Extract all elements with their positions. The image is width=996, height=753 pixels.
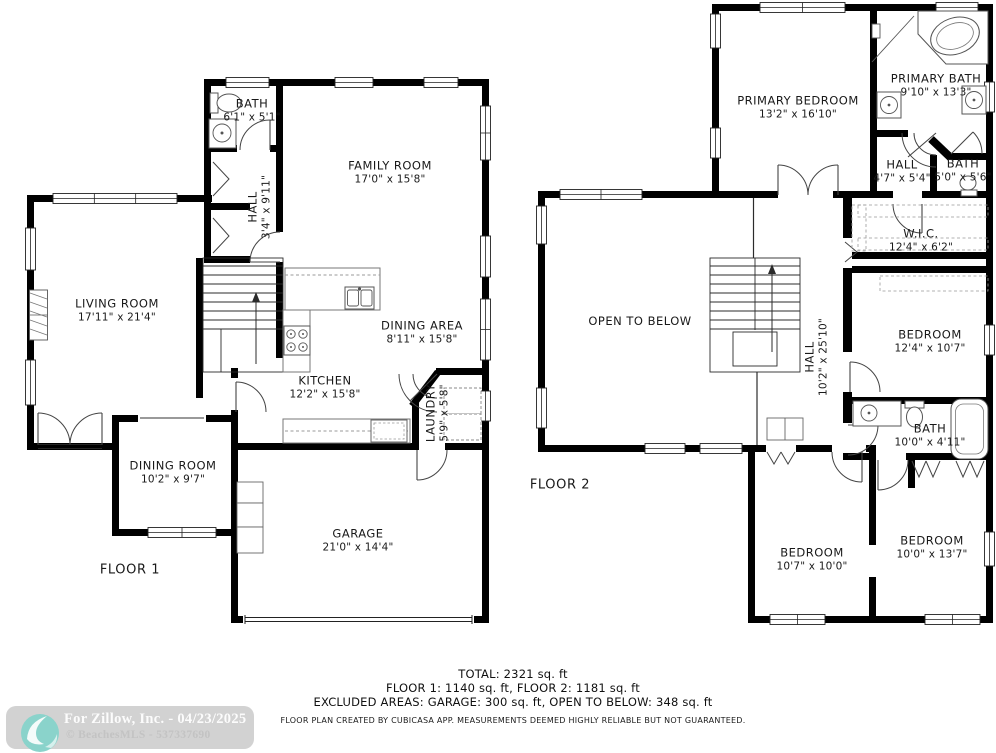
area-summary: TOTAL: 2321 sq. ft FLOOR 1: 1140 sq. ft,… (280, 667, 745, 725)
room-label-hall-upper-f2: HALL 4'7" x 5'4" (873, 158, 930, 185)
room-label-hall-f2: HALL 10'2" x 25'10" (803, 318, 830, 396)
room-label-wic: W.I.C. 12'4" x 6'2" (889, 227, 953, 254)
room-label-dining-area: DINING AREA 8'11" x 15'8" (381, 319, 463, 346)
stairs-floor2-icon (710, 198, 800, 445)
room-label-family-room: FAMILY ROOM 17'0" x 15'8" (348, 159, 432, 186)
wave-logo-icon (16, 708, 62, 753)
floor1-label: FLOOR 1 (100, 563, 160, 578)
room-label-kitchen: KITCHEN 12'2" x 15'8" (289, 374, 360, 401)
excluded-areas: EXCLUDED AREAS: GARAGE: 300 sq. ft, OPEN… (280, 695, 745, 709)
room-label-bath-upper-f2: BATH 5'0" x 5'6" (934, 157, 991, 184)
room-label-primary-bedroom: PRIMARY BEDROOM 13'2" x 16'10" (737, 94, 859, 121)
room-label-bedroom-bl: BEDROOM 10'7" x 10'0" (776, 546, 847, 573)
watermark: For Zillow, Inc. - 04/23/2025 © BeachesM… (6, 706, 254, 749)
watermark-line2: © BeachesMLS - 537337690 (66, 729, 211, 741)
room-label-bath-lower-f2: BATH 10'0" x 4'11" (894, 422, 965, 449)
disclaimer: FLOOR PLAN CREATED BY CUBICASA APP. MEAS… (280, 716, 745, 725)
total-area: TOTAL: 2321 sq. ft (280, 667, 745, 681)
floor-areas: FLOOR 1: 1140 sq. ft, FLOOR 2: 1181 sq. … (280, 681, 745, 695)
room-label-living-room: LIVING ROOM 17'11" x 21'4" (75, 297, 159, 324)
kitchen-sink-icon (345, 287, 374, 309)
room-label-open-to-below: OPEN TO BELOW (588, 314, 691, 328)
room-label-laundry: LAUNDRY 5'9" x 5'8" (424, 384, 451, 442)
garage-storage (237, 482, 263, 553)
floor-plan-page: { "colors": { "wall": "#000000", "line":… (0, 0, 996, 749)
door-arc-icons (38, 120, 982, 490)
room-label-garage: GARAGE 21'0" x 14'4" (322, 527, 393, 554)
room-label-bath-f1: BATH 6'1" x 5'1" (223, 97, 280, 124)
room-label-hall-f1: HALL 3'4" x 9'11" (246, 175, 273, 239)
dishwasher-icon (371, 420, 407, 442)
stove-icon (284, 326, 310, 355)
room-label-primary-bath: PRIMARY BATH 9'10" x 13'3" (891, 72, 982, 99)
floor2-label: FLOOR 2 (530, 478, 590, 493)
corner-tub-icon (872, 11, 988, 64)
hall-console-table (767, 418, 803, 440)
fireplace-icon (30, 290, 48, 340)
watermark-line1: For Zillow, Inc. - 04/23/2025 (64, 711, 246, 728)
room-label-dining-room: DINING ROOM 10'2" x 9'7" (130, 459, 217, 486)
garage-door (243, 615, 474, 625)
room-label-bedroom-mid: BEDROOM 12'4" x 10'7" (894, 328, 965, 355)
room-label-bedroom-br: BEDROOM 10'0" x 13'7" (896, 534, 967, 561)
stairs-floor1-icon (203, 258, 283, 372)
